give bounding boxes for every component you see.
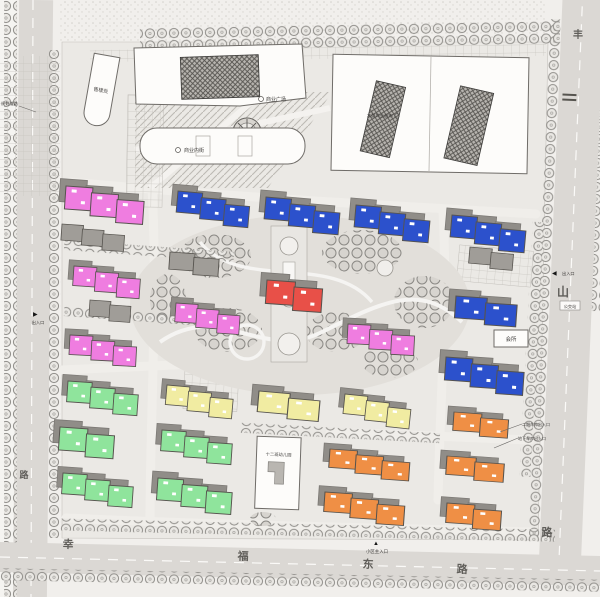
road-name-char: 路 xyxy=(456,562,468,576)
entrance-label: 出入口 xyxy=(32,319,45,326)
entrance-arrow-icon: ▲ xyxy=(373,541,379,547)
road-note-label: 规划道路 xyxy=(1,100,19,107)
entrance-arrow-icon: ▶ xyxy=(33,312,38,318)
bus-stop: 公交站 xyxy=(560,301,580,310)
road-name-char: 路 xyxy=(542,525,554,539)
road-name-char: 丰 xyxy=(573,28,583,41)
east-entrance: ◀ 出入口 xyxy=(552,270,575,277)
club-label: 会所 xyxy=(506,335,517,343)
plaza-label: 商业广场 xyxy=(266,96,286,103)
corner-paving xyxy=(0,56,60,196)
club-building: 会所 xyxy=(494,330,528,347)
site-plan-drawing: 售楼处 商业内街 商业广场 大型商业超市 xyxy=(0,0,600,597)
master-plan-canvas: 售楼处 商业内街 商业广场 大型商业超市 xyxy=(0,0,600,597)
commercial-inner-street-building: 商业内街 xyxy=(140,128,305,164)
road-name-char: 东 xyxy=(362,557,373,571)
south-road xyxy=(0,519,600,592)
road-name-west: 路 xyxy=(19,469,29,480)
road-name-char: 山 xyxy=(557,284,569,299)
fountain xyxy=(377,260,393,276)
road-name-char: 路 xyxy=(19,469,29,480)
road-name-char: 福 xyxy=(236,549,248,563)
garage-entrance-label: 地下车库出入口 xyxy=(518,435,546,441)
tree-cluster xyxy=(250,512,276,526)
bus-stop-label: 公交站 xyxy=(564,303,577,310)
garage-entrance-label: 二期车库出入口 xyxy=(522,421,550,427)
supermarket-building: 大型商业超市 xyxy=(331,54,529,173)
kindergarten-building: 十二班幼儿园 xyxy=(255,436,301,509)
entrance-arrow-icon: ◀ xyxy=(552,271,557,277)
inner-street-label: 商业内街 xyxy=(184,147,204,154)
entrance-label: 出入口 xyxy=(562,270,575,277)
main-entrance-label: 小区主入口 xyxy=(366,548,388,555)
road-name-char: 幸 xyxy=(62,537,73,551)
